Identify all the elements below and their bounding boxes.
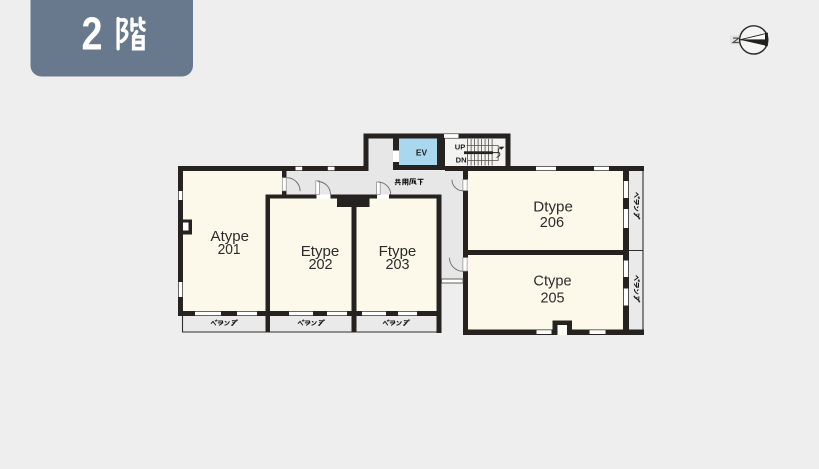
svg-text:EV: EV [416,148,428,158]
svg-text:2: 2 [82,8,103,60]
svg-text:Dtype: Dtype [533,198,573,215]
svg-text:205: 205 [541,290,565,307]
svg-text:DN: DN [456,155,467,164]
svg-text:202: 202 [308,256,332,273]
svg-text:Ctype: Ctype [533,272,571,289]
svg-text:UP: UP [455,142,466,151]
svg-text:206: 206 [540,214,564,231]
svg-text:203: 203 [386,256,410,273]
svg-text:201: 201 [218,241,241,258]
